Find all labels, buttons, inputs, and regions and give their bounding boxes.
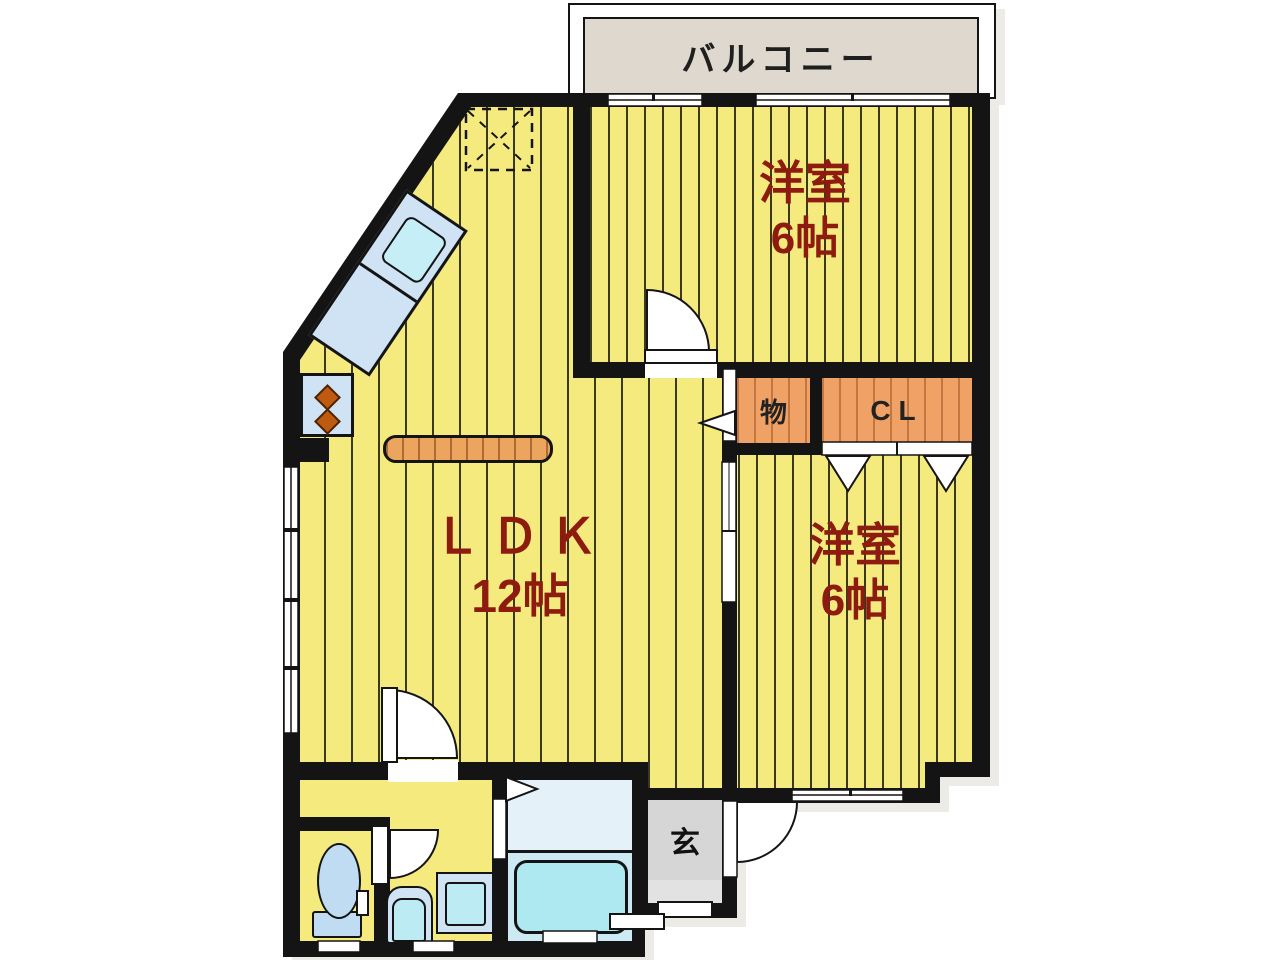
closet-label: CL (822, 378, 972, 443)
toilet-bowl (317, 843, 361, 919)
ldk-label: ＬＤＫ 12帖 (415, 512, 625, 621)
floorplan-canvas: バルコニー (0, 0, 1276, 960)
toilet-wall-horizontal (300, 817, 390, 831)
room-name: 洋室 (760, 520, 950, 571)
kitchen-counter-bar (383, 435, 553, 463)
bathroom-floor (508, 780, 632, 853)
balcony-floor: バルコニー (583, 17, 979, 95)
room-size: 6帖 (760, 577, 950, 625)
room-name: ＬＤＫ (415, 512, 625, 565)
toilet-paper-holder (356, 890, 369, 916)
balcony-area: バルコニー (568, 3, 996, 99)
room-name: 洋室 (705, 158, 905, 209)
bedroom-right-label: 洋室 6帖 (760, 520, 950, 625)
entrance-step (648, 880, 722, 903)
storage-label: 物 (737, 378, 810, 443)
washbasin-bowl (392, 898, 426, 942)
bathroom-wall (492, 780, 508, 941)
bathtub (514, 860, 628, 934)
room-size: 6帖 (705, 215, 905, 263)
balcony-label: バルコニー (681, 32, 880, 81)
room-size: 12帖 (415, 571, 625, 622)
bedroom-top-label: 洋室 6帖 (705, 158, 905, 263)
kitchen-wall-pier (283, 438, 329, 462)
washing-machine-tub (445, 882, 486, 926)
entrance-label: 玄 (648, 800, 722, 880)
